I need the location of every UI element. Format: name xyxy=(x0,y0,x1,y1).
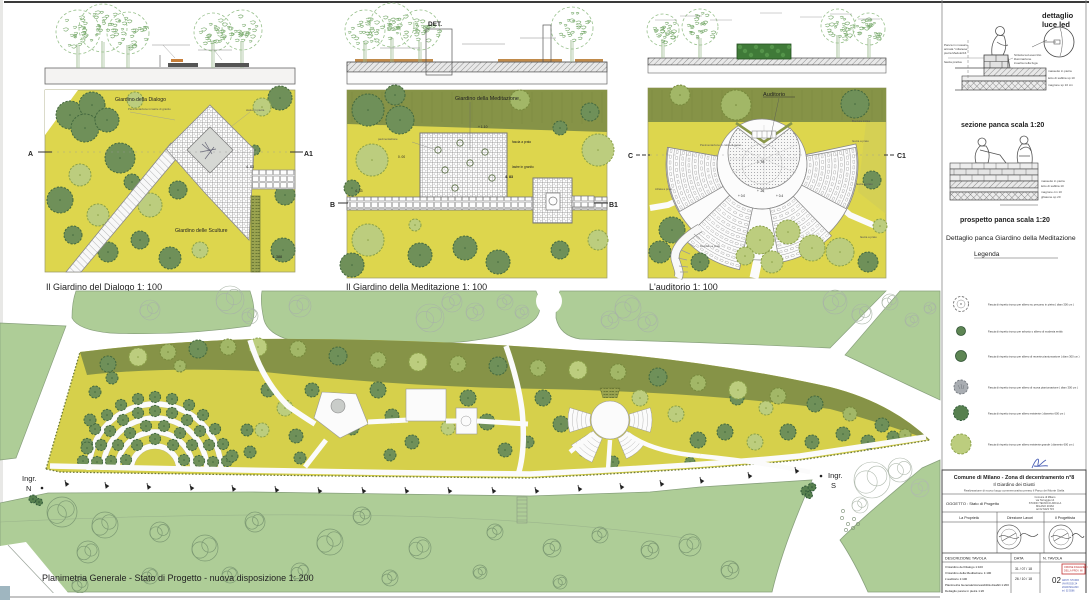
svg-text:4. 388: 4. 388 xyxy=(272,255,282,259)
svg-text:tel 02 6423 715: tel 02 6423 715 xyxy=(1036,507,1054,511)
svg-text:prospetto panca scala 1:20: prospetto panca scala 1:20 xyxy=(960,217,1050,224)
svg-text:+ 1.10: + 1.10 xyxy=(478,125,488,129)
svg-text:magrone sp 10 cm: magrone sp 10 cm xyxy=(1048,83,1073,87)
svg-text:31 / 07 / 18: 31 / 07 / 18 xyxy=(1015,567,1032,571)
svg-text:Planimetria Generale - Stato d: Planimetria Generale - Stato di Progetto… xyxy=(42,573,314,583)
svg-text:massetto in pietra: massetto in pietra xyxy=(1041,179,1065,183)
svg-text:Il Giardino del Dialogo 1: 100: Il Giardino del Dialogo 1: 100 xyxy=(46,282,162,292)
svg-text:Pavimentazione in lastre di gr: Pavimentazione in lastre di granito xyxy=(128,107,171,111)
svg-text:Fascia di rispetto tronco per: Fascia di rispetto tronco per arbusto o … xyxy=(988,330,1063,334)
svg-text:+ .26: + .26 xyxy=(757,189,764,193)
svg-text:fascia a prato: fascia a prato xyxy=(860,235,877,239)
svg-text:Fascia di rispetto tronco per: Fascia di rispetto tronco per albero di … xyxy=(988,386,1078,390)
svg-text:1. 94: 1. 94 xyxy=(757,160,765,164)
svg-text:Il Giardino della Meditazione: Il Giardino della Meditazione 1:100 xyxy=(945,571,992,575)
svg-text:Fascia di rispetto tronco per: Fascia di rispetto tronco per albero su … xyxy=(988,303,1074,307)
svg-text:Il Giardino del Dialogo 1:10: Il Giardino del Dialogo 1:100 xyxy=(945,565,983,569)
svg-text:Il Giardino dei Giusti: Il Giardino dei Giusti xyxy=(993,482,1034,487)
svg-text:statua in pietra: statua in pietra xyxy=(246,108,265,112)
svg-text:26 / 10 / 18: 26 / 10 / 18 xyxy=(1015,577,1032,581)
svg-text:+ 0.0: + 0.0 xyxy=(738,194,745,198)
svg-text:La Proprietà: La Proprietà xyxy=(959,516,979,520)
svg-text:Giardino della Meditazione: Giardino della Meditazione xyxy=(455,96,519,102)
svg-text:tel. 02 5566: tel. 02 5566 xyxy=(1062,590,1075,593)
svg-text:+ 0.4: + 0.4 xyxy=(776,194,783,198)
svg-text:B1: B1 xyxy=(609,202,618,209)
svg-text:Legenda: Legenda xyxy=(974,251,1000,258)
svg-text:Il Progettista: Il Progettista xyxy=(1055,516,1075,520)
svg-text:DELLA PROV. MI: DELLA PROV. MI xyxy=(1064,570,1083,573)
svg-text:Fascia di rispetto tronco per: Fascia di rispetto tronco per albero esi… xyxy=(988,443,1074,447)
svg-text:massetto in pietra: massetto in pietra xyxy=(1048,69,1072,73)
svg-text:fascia prativa: fascia prativa xyxy=(944,60,962,64)
svg-text:Fascia di rispetto tronco per: Fascia di rispetto tronco per albero esi… xyxy=(988,412,1065,416)
svg-text:fascia a prato: fascia a prato xyxy=(856,182,873,186)
svg-text:letto di sabbia 10: letto di sabbia 10 xyxy=(1041,184,1064,188)
svg-text:dettaglio: dettaglio xyxy=(1042,11,1074,20)
svg-text:ghiaione sp 20: ghiaione sp 20 xyxy=(1041,195,1061,199)
svg-text:B: B xyxy=(330,202,335,209)
svg-text:02: 02 xyxy=(1052,576,1061,585)
svg-text:pavimentazione: pavimentazione xyxy=(378,137,398,141)
svg-text:Dettaglio panca Giardino della: Dettaglio panca Giardino della Meditazio… xyxy=(946,235,1076,242)
svg-text:Ingr.: Ingr. xyxy=(22,474,37,483)
svg-text:sezione panca scala 1:20: sezione panca scala 1:20 xyxy=(961,122,1044,129)
svg-text:Realizzazione di nuovo luogo c: Realizzazione di nuovo luogo commemorati… xyxy=(964,489,1065,493)
svg-text:Comune di Milano - Zona di dec: Comune di Milano - Zona di decentramento… xyxy=(954,475,1074,481)
svg-text:Giardino delle Sculture: Giardino delle Sculture xyxy=(175,228,228,234)
svg-text:pietra Medolo/16: pietra Medolo/16 xyxy=(944,51,967,55)
svg-text:S: S xyxy=(831,481,836,490)
svg-text:A1: A1 xyxy=(304,151,313,158)
svg-text:A: A xyxy=(28,151,33,158)
svg-text:fascia a prato: fascia a prato xyxy=(512,140,531,144)
svg-text:4. 83: 4. 83 xyxy=(355,189,363,193)
svg-text:Degrado a prato: Degrado a prato xyxy=(700,244,721,248)
svg-text:Il Giardino della Meditazione: Il Giardino della Meditazione 1: 100 xyxy=(346,282,487,292)
svg-text:Bordura incisa: Bordura incisa xyxy=(852,119,870,123)
svg-text:Giardino della Dialogo: Giardino della Dialogo xyxy=(115,97,166,103)
svg-text:DATA: DATA xyxy=(1014,557,1024,561)
svg-text:fascia a prato: fascia a prato xyxy=(852,139,869,143)
svg-text:L'auditorio 1: 100: L'auditorio 1: 100 xyxy=(649,282,718,292)
svg-text:DESCRIZIONE TAVOLA: DESCRIZIONE TAVOLA xyxy=(945,557,987,561)
svg-text:N: N xyxy=(26,484,31,493)
svg-text:Direzione Lavori: Direzione Lavori xyxy=(1007,516,1033,520)
svg-text:lastre in granito: lastre in granito xyxy=(512,165,534,169)
svg-text:Fascia di rispetto tronco per: Fascia di rispetto tronco per albero di … xyxy=(988,355,1080,359)
svg-text:4. 83: 4. 83 xyxy=(505,175,513,179)
svg-text:N. TAVOLA: N. TAVOLA xyxy=(1043,557,1063,561)
svg-text:C1: C1 xyxy=(897,153,906,160)
svg-text:C: C xyxy=(628,153,633,160)
svg-text:DET.: DET. xyxy=(428,21,442,28)
svg-text:L'auditorio 1:100: L'auditorio 1:100 xyxy=(945,577,967,581)
svg-text:4. 83: 4. 83 xyxy=(246,165,254,169)
svg-text:Ingr.: Ingr. xyxy=(828,471,843,480)
svg-text:OGGETTO : Stato di Progetto: OGGETTO : Stato di Progetto xyxy=(946,501,1000,506)
svg-text:0. 00: 0. 00 xyxy=(398,155,405,159)
svg-text:Dettaglio panca in pietra 1:20: Dettaglio panca in pietra 1:20 xyxy=(945,589,984,593)
svg-text:Pavimentazione in calce di ges: Pavimentazione in calce di gesso xyxy=(700,143,742,147)
svg-text:inserita nella fuga: inserita nella fuga xyxy=(1014,61,1038,65)
svg-text:letto di sabbia sp 10: letto di sabbia sp 10 xyxy=(1048,76,1075,80)
svg-text:magrone cm 10: magrone cm 10 xyxy=(1041,190,1062,194)
svg-text:Planimetria Generale/Accessibi: Planimetria Generale/Accessibilità disab… xyxy=(945,583,1009,587)
svg-text:Alzata a prato: Alzata a prato xyxy=(655,187,673,191)
